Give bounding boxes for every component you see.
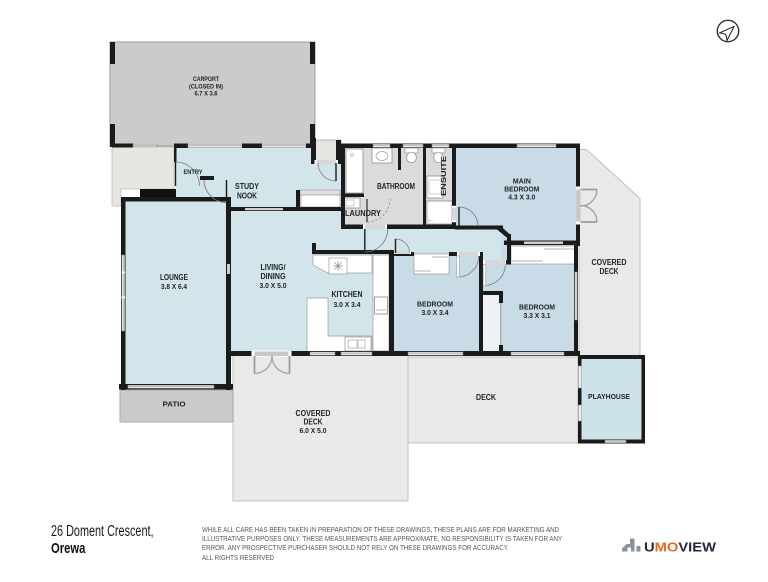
svg-text:3.0 X 5.0: 3.0 X 5.0 (260, 281, 287, 290)
svg-text:(CLOSED IN): (CLOSED IN) (189, 84, 223, 91)
svg-text:DECK: DECK (476, 393, 496, 402)
svg-text:ENTRY: ENTRY (184, 169, 204, 176)
svg-text:LIVING/: LIVING/ (261, 263, 287, 272)
svg-text:BATHROOM: BATHROOM (377, 182, 415, 191)
svg-text:4.3 X 3.0: 4.3 X 3.0 (508, 192, 535, 201)
svg-text:ENSUITE: ENSUITE (439, 156, 448, 196)
svg-text:3.3 X 3.1: 3.3 X 3.1 (524, 311, 551, 320)
svg-text:KITCHEN: KITCHEN (332, 290, 363, 299)
svg-text:PATIO: PATIO (163, 400, 186, 409)
svg-text:NOOK: NOOK (237, 192, 257, 201)
svg-text:CARPORT: CARPORT (193, 76, 219, 83)
svg-text:LOUNGE: LOUNGE (160, 273, 188, 282)
svg-text:3.0 X 3.4: 3.0 X 3.4 (334, 300, 362, 309)
svg-text:DECK: DECK (600, 267, 619, 276)
svg-text:DINING: DINING (261, 272, 286, 281)
svg-text:UMOVIEW: UMOVIEW (644, 541, 716, 555)
svg-text:STUDY: STUDY (235, 182, 260, 191)
svg-text:6.0 X 5.0: 6.0 X 5.0 (300, 426, 327, 435)
svg-text:3.0 X 3.4: 3.0 X 3.4 (422, 308, 449, 317)
svg-text:PLAYHOUSE: PLAYHOUSE (588, 392, 630, 401)
svg-text:COVERED: COVERED (592, 258, 627, 267)
svg-text:6.7 X 3.6: 6.7 X 3.6 (195, 91, 218, 98)
svg-text:3.8 X 6.4: 3.8 X 6.4 (161, 282, 188, 291)
svg-text:LAUNDRY: LAUNDRY (345, 209, 382, 218)
